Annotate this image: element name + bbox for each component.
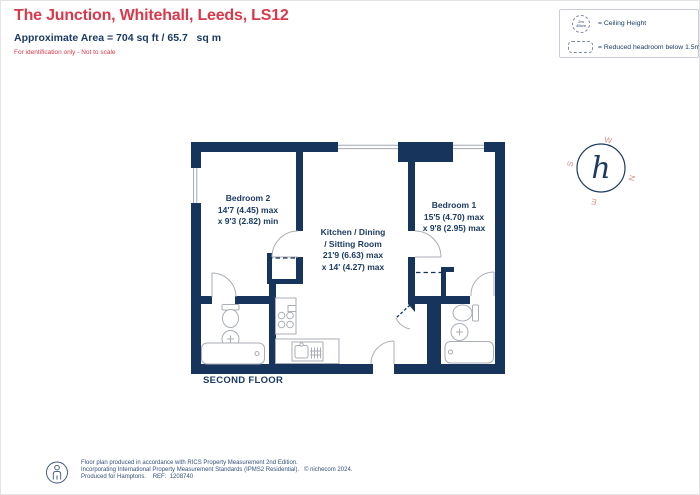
bathroom-right-door [471,272,494,296]
compass: N E S W h [565,135,636,206]
room-dim: 21'9 (6.63) max [321,250,386,262]
floorplan-document: The Junction, Whitehall, Leeds, LS12 App… [0,0,700,495]
kitchen-fixtures [276,298,340,364]
hall-door-arc [396,318,410,329]
bathroom-left-fixtures [202,305,265,365]
hall-door-leaf [396,305,410,318]
room-dim: x 9'3 (2.82) min [218,216,279,228]
footer-line-1: Floor plan produced in accordance with R… [81,460,298,466]
compass-south: S [565,160,575,167]
bedroom1-door [415,231,441,257]
hob-ring-icon [278,321,285,328]
room-name: / Sitting Room [321,239,386,251]
hob-control [288,306,296,312]
sink-bowl-icon [295,346,308,359]
hob-ring-icon [278,312,285,319]
compass-center-glyph: h [591,151,610,186]
bathroom-right-fixtures [445,305,494,363]
room-name: Kitchen / Dining [321,227,386,239]
hob-ring-icon [287,321,294,328]
tap-icon [255,352,259,356]
room-name: Bedroom 2 [218,193,279,205]
compass-east: E [590,197,597,207]
footer-copyright: © nichecom 2024. [304,467,352,473]
hob-ring-icon [287,312,294,319]
room-dim: 15'5 (4.70) max [423,212,486,224]
room-label-bedroom2: Bedroom 2 14'7 (4.45) max x 9'3 (2.82) m… [218,193,279,228]
room-dim: x 14' (4.27) max [321,262,386,274]
floor-label: SECOND FLOOR [203,375,283,386]
room-label-bedroom1: Bedroom 1 15'5 (4.70) max x 9'8 (2.95) m… [423,200,486,235]
tap-icon [300,343,303,346]
room-label-kitchen: Kitchen / Dining / Sitting Room 21'9 (6.… [321,227,386,273]
bedroom2-door [272,231,298,257]
surveyor-icon [47,462,68,483]
room-dim: 14'7 (4.45) max [218,205,279,217]
room-dim: x 9'8 (2.95) max [423,223,486,235]
footer-line-2: Incorporating International Property Mea… [81,467,299,473]
bathroom-left-door [212,273,236,297]
entrance-door [371,341,394,364]
toilet-icon [473,305,479,321]
tap-icon [449,350,453,354]
compass-north: N [627,174,637,182]
footer-line-3: Produced for Hamptons. REF: 1208740 [81,474,193,480]
compass-west: W [603,135,613,146]
toilet-icon [223,310,239,328]
toilet-icon [453,305,472,321]
room-name: Bedroom 1 [423,200,486,212]
